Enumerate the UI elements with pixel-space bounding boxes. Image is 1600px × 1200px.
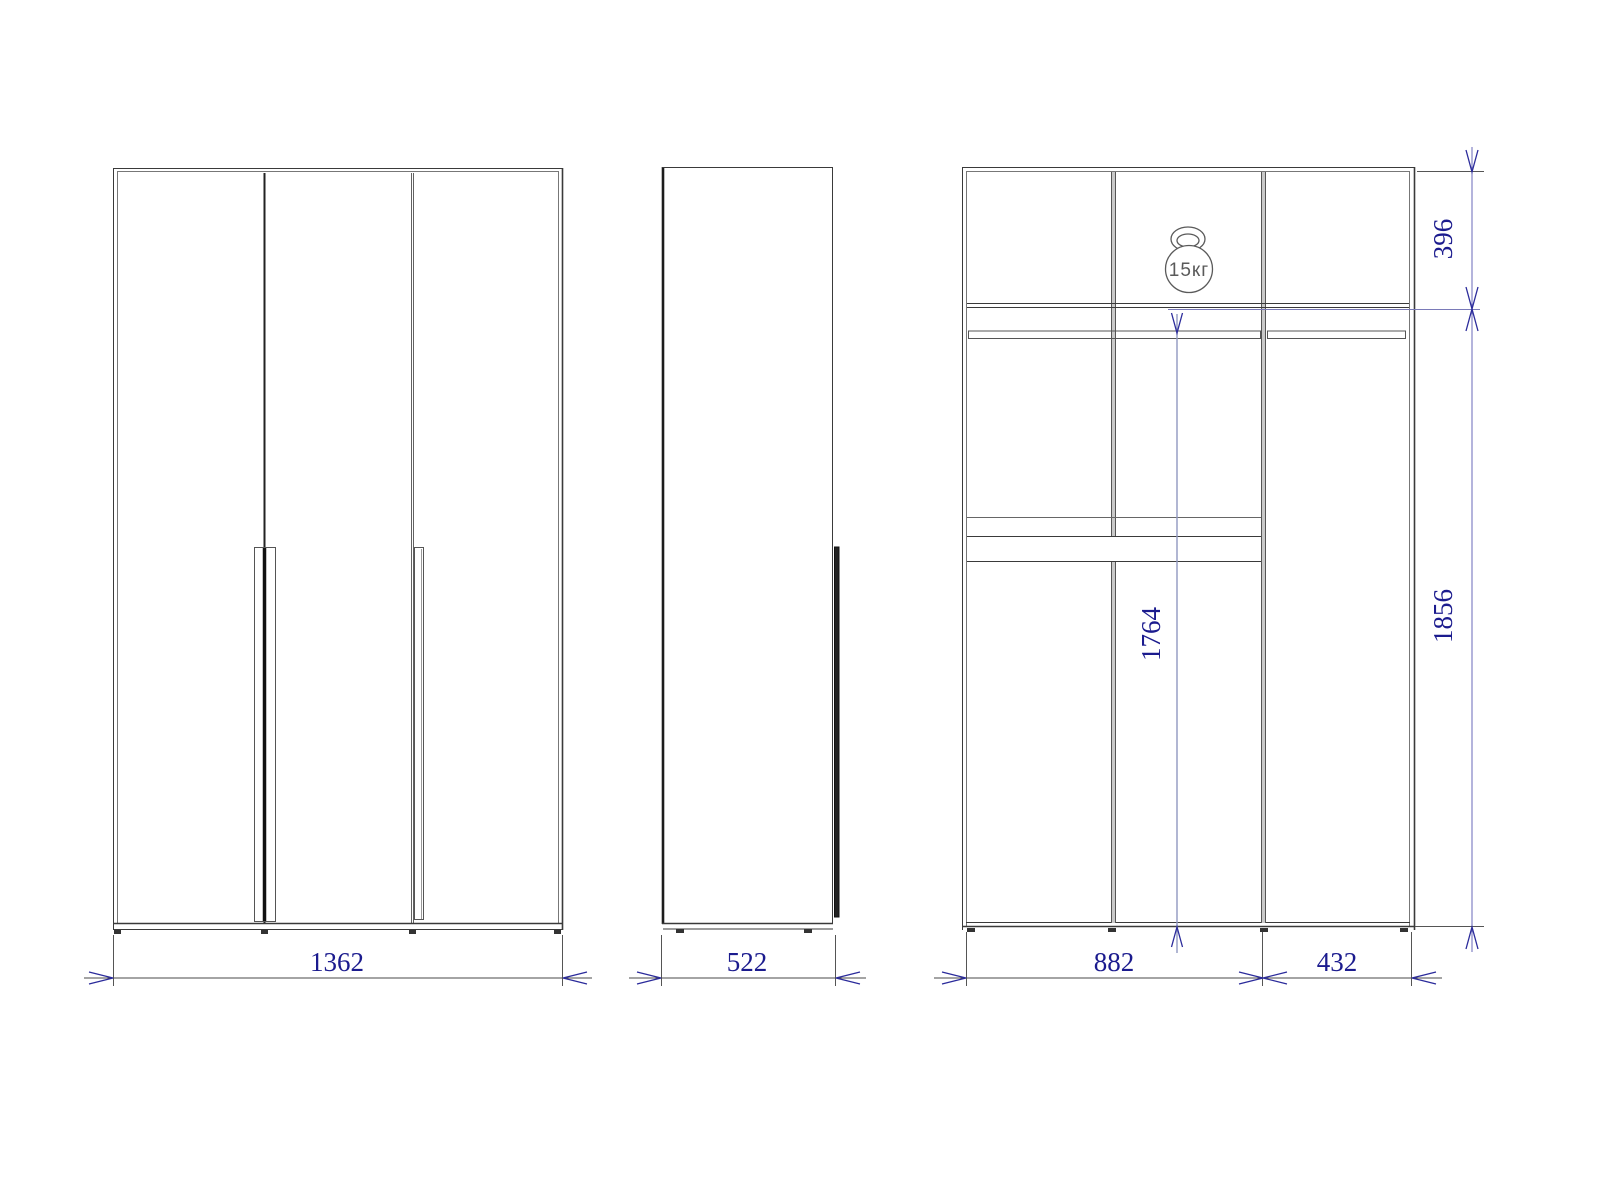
dimension-arrows xyxy=(89,150,1478,984)
extension-lines xyxy=(114,172,1485,987)
front-view xyxy=(113,168,563,934)
side-view xyxy=(662,167,839,933)
dimension-front-width: 1362 xyxy=(310,947,364,977)
dimensions: 1362 522 882 432 396 1856 1764 xyxy=(84,147,1484,986)
drawing-canvas: 15кг xyxy=(0,0,1600,1200)
side-handle-profile xyxy=(835,547,840,917)
kettlebell-icon: 15кг xyxy=(1166,227,1213,293)
front-left-door-handle xyxy=(255,548,276,922)
internal-partition-left xyxy=(1112,172,1116,923)
side-carcass xyxy=(662,167,833,929)
internal-partition-right xyxy=(1262,172,1266,923)
internal-view: 15кг xyxy=(962,167,1415,932)
front-right-door-handle xyxy=(415,548,424,920)
internal-feet xyxy=(967,928,1408,932)
dimension-side-depth: 522 xyxy=(727,947,768,977)
front-carcass xyxy=(113,168,563,930)
dimension-top-section-height: 396 xyxy=(1428,219,1458,260)
wardrobe-technical-drawing: 15кг xyxy=(0,0,1600,1200)
dimension-hanging-height: 1764 xyxy=(1136,607,1166,662)
dimension-interior-height: 1856 xyxy=(1428,589,1458,643)
hanging-rod xyxy=(968,331,1406,339)
internal-top-shelf xyxy=(967,304,1409,308)
front-door-gaps xyxy=(265,173,414,923)
dimension-left-section-width: 882 xyxy=(1094,947,1135,977)
max-load-label: 15кг xyxy=(1169,260,1209,281)
dimension-right-section-width: 432 xyxy=(1317,947,1358,977)
front-feet xyxy=(114,930,561,934)
side-feet xyxy=(676,929,812,933)
